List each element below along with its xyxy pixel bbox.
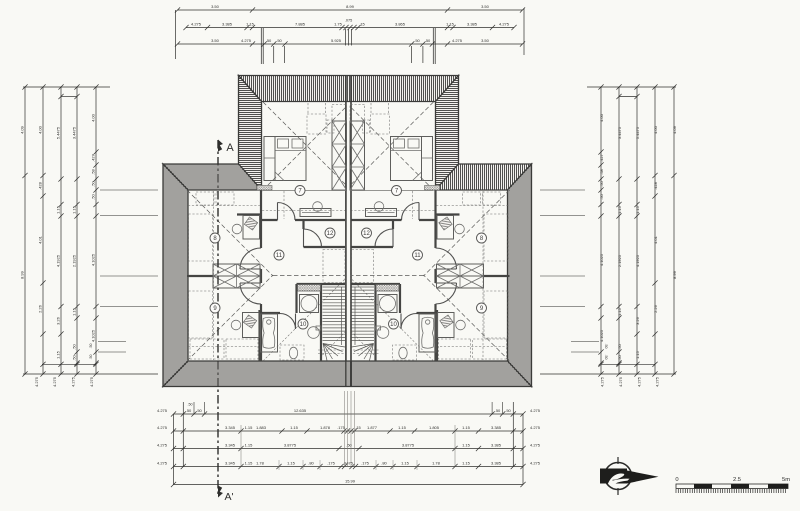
svg-text:.50: .50 <box>505 408 511 413</box>
svg-text:4.275: 4.275 <box>157 443 168 448</box>
svg-text:.50: .50 <box>346 443 352 448</box>
svg-text:5m: 5m <box>782 477 790 483</box>
svg-text:3.345: 3.345 <box>225 461 236 466</box>
svg-text:4.275: 4.275 <box>71 376 76 387</box>
svg-text:.075: .075 <box>345 19 352 23</box>
svg-text:1.15: 1.15 <box>617 307 622 316</box>
svg-text:2.1925: 2.1925 <box>72 254 77 267</box>
svg-text:3.345: 3.345 <box>225 443 236 448</box>
svg-text:1.15: 1.15 <box>617 205 622 214</box>
svg-text:3.50: 3.50 <box>211 38 220 43</box>
svg-text:3.26: 3.26 <box>635 316 640 325</box>
svg-text:.50: .50 <box>617 343 622 349</box>
svg-text:4.275: 4.275 <box>637 376 642 387</box>
svg-text:4.275: 4.275 <box>157 425 168 430</box>
svg-text:.50: .50 <box>72 343 77 349</box>
svg-text:1.15: 1.15 <box>56 350 61 359</box>
svg-text:3.50: 3.50 <box>481 38 490 43</box>
svg-text:3.385: 3.385 <box>491 461 502 466</box>
svg-text:3.26: 3.26 <box>56 316 61 325</box>
svg-text:4.1025: 4.1025 <box>91 329 96 342</box>
svg-text:4.275: 4.275 <box>157 408 168 413</box>
svg-text:3.345: 3.345 <box>225 425 236 430</box>
svg-text:.427: .427 <box>599 153 604 162</box>
svg-text:4.275: 4.275 <box>618 376 623 387</box>
svg-text:.50: .50 <box>617 354 622 360</box>
svg-text:A': A' <box>224 491 233 503</box>
svg-text:3.385: 3.385 <box>467 22 478 27</box>
svg-text:4.275: 4.275 <box>530 461 541 466</box>
svg-text:.15: .15 <box>355 425 361 430</box>
svg-text:3.4475: 3.4475 <box>72 126 77 139</box>
svg-text:11: 11 <box>414 253 421 259</box>
svg-text:5.4475: 5.4475 <box>56 126 61 139</box>
svg-text:.50: .50 <box>72 354 77 360</box>
svg-text:2.1925: 2.1925 <box>617 254 622 267</box>
svg-text:1.15: 1.15 <box>635 205 640 214</box>
svg-text:1.15: 1.15 <box>245 425 254 430</box>
svg-text:1.805: 1.805 <box>429 425 440 430</box>
svg-text:4.1025: 4.1025 <box>599 329 604 342</box>
svg-text:1.15: 1.15 <box>290 425 299 430</box>
svg-text:1.15: 1.15 <box>401 461 410 466</box>
svg-text:1.15: 1.15 <box>72 307 77 316</box>
svg-text:2.26: 2.26 <box>653 304 658 313</box>
svg-text:12.635: 12.635 <box>294 408 307 413</box>
svg-text:3.50: 3.50 <box>481 4 490 9</box>
svg-text:4.275: 4.275 <box>89 376 94 387</box>
svg-text:A: A <box>226 142 234 154</box>
svg-text:8.99: 8.99 <box>672 270 677 279</box>
svg-text:1.15: 1.15 <box>245 461 254 466</box>
svg-text:11: 11 <box>276 253 283 259</box>
svg-text:3.385: 3.385 <box>491 443 502 448</box>
svg-text:.50: .50 <box>599 180 604 186</box>
svg-text:4.01: 4.01 <box>653 235 658 244</box>
svg-text:1.883: 1.883 <box>256 425 267 430</box>
svg-text:4.275: 4.275 <box>52 376 57 387</box>
svg-text:10: 10 <box>390 322 397 328</box>
svg-text:4.09: 4.09 <box>672 125 677 134</box>
svg-text:.175: .175 <box>327 461 336 466</box>
svg-text:.58: .58 <box>599 168 604 174</box>
svg-text:3.50: 3.50 <box>211 4 220 9</box>
svg-text:1.15: 1.15 <box>398 425 407 430</box>
svg-text:.427: .427 <box>91 153 96 162</box>
svg-text:1.15: 1.15 <box>462 443 471 448</box>
svg-text:4.1025: 4.1025 <box>91 253 96 266</box>
svg-text:4.275: 4.275 <box>34 376 39 387</box>
svg-text:4.00: 4.00 <box>599 113 604 122</box>
svg-text:1.78: 1.78 <box>256 461 265 466</box>
svg-text:.428: .428 <box>38 181 43 190</box>
svg-text:4.09: 4.09 <box>20 125 25 134</box>
svg-text:0: 0 <box>675 477 678 483</box>
svg-text:.50: .50 <box>91 180 96 186</box>
svg-text:4.1925: 4.1925 <box>56 254 61 267</box>
svg-text:10: 10 <box>300 322 307 328</box>
svg-text:15.99: 15.99 <box>345 479 356 484</box>
svg-text:.50: .50 <box>196 408 202 413</box>
svg-text:3.8775: 3.8775 <box>284 443 297 448</box>
svg-text:1.15: 1.15 <box>446 22 455 27</box>
svg-text:4.00: 4.00 <box>653 125 658 134</box>
svg-text:3.385: 3.385 <box>491 425 502 430</box>
svg-text:.50: .50 <box>266 38 272 43</box>
svg-text:4.01: 4.01 <box>38 235 43 244</box>
svg-text:3.865: 3.865 <box>395 22 406 27</box>
svg-text:.58: .58 <box>91 168 96 174</box>
svg-text:8.99: 8.99 <box>346 4 355 9</box>
svg-text:1.15: 1.15 <box>635 350 640 359</box>
svg-text:4.275: 4.275 <box>655 376 660 387</box>
svg-text:3.8775: 3.8775 <box>402 443 415 448</box>
svg-text:4.275: 4.275 <box>600 376 605 387</box>
svg-text:12: 12 <box>327 231 334 237</box>
svg-text:8.99: 8.99 <box>20 270 25 279</box>
svg-text:4.275: 4.275 <box>499 22 510 27</box>
svg-text:.50: .50 <box>188 403 193 407</box>
svg-text:12: 12 <box>363 231 370 237</box>
svg-text:4.275: 4.275 <box>191 22 202 27</box>
svg-text:.15: .15 <box>359 22 365 27</box>
svg-text:4.275: 4.275 <box>530 425 541 430</box>
svg-text:2.5: 2.5 <box>733 477 741 483</box>
svg-text:.50: .50 <box>89 355 93 360</box>
svg-text:2.26: 2.26 <box>38 304 43 313</box>
svg-text:.50: .50 <box>276 38 282 43</box>
svg-text:.50: .50 <box>425 38 431 43</box>
svg-text:4.275: 4.275 <box>241 38 252 43</box>
svg-text:.50: .50 <box>89 344 93 349</box>
svg-text:1.78: 1.78 <box>432 461 441 466</box>
svg-text:.50: .50 <box>186 408 192 413</box>
svg-text:1.15: 1.15 <box>287 461 296 466</box>
svg-text:7.885: 7.885 <box>295 22 306 27</box>
svg-text:.50: .50 <box>604 355 608 360</box>
svg-text:4.275: 4.275 <box>530 443 541 448</box>
svg-text:4.00: 4.00 <box>38 125 43 134</box>
svg-text:.80: .80 <box>381 461 387 466</box>
svg-text:.80: .80 <box>308 461 314 466</box>
svg-text:4.275: 4.275 <box>530 408 541 413</box>
svg-text:3.4475: 3.4475 <box>617 126 622 139</box>
svg-text:1.15: 1.15 <box>246 22 255 27</box>
svg-text:1.15: 1.15 <box>462 425 471 430</box>
svg-text:4.1025: 4.1025 <box>599 253 604 266</box>
svg-text:1.75: 1.75 <box>334 22 343 27</box>
svg-text:1.15: 1.15 <box>245 443 254 448</box>
svg-text:1.877: 1.877 <box>367 425 378 430</box>
svg-text:5.4475: 5.4475 <box>635 126 640 139</box>
svg-text:.50: .50 <box>599 193 604 199</box>
svg-text:4.275: 4.275 <box>157 461 168 466</box>
svg-text:.50: .50 <box>604 344 608 349</box>
svg-text:4.00: 4.00 <box>91 113 96 122</box>
svg-text:1.15: 1.15 <box>72 205 77 214</box>
svg-text:.50: .50 <box>91 193 96 199</box>
svg-text:1.15: 1.15 <box>56 205 61 214</box>
svg-text:4.275: 4.275 <box>452 38 463 43</box>
svg-text:3.385: 3.385 <box>222 22 233 27</box>
svg-text:5.925: 5.925 <box>331 38 342 43</box>
svg-text:.50: .50 <box>495 408 501 413</box>
svg-text:.175: .175 <box>361 461 370 466</box>
svg-text:1.15: 1.15 <box>462 461 471 466</box>
svg-text:1.878: 1.878 <box>320 425 331 430</box>
svg-text:4.1925: 4.1925 <box>635 254 640 267</box>
svg-text:.428: .428 <box>653 181 658 190</box>
svg-text:.50: .50 <box>414 38 420 43</box>
